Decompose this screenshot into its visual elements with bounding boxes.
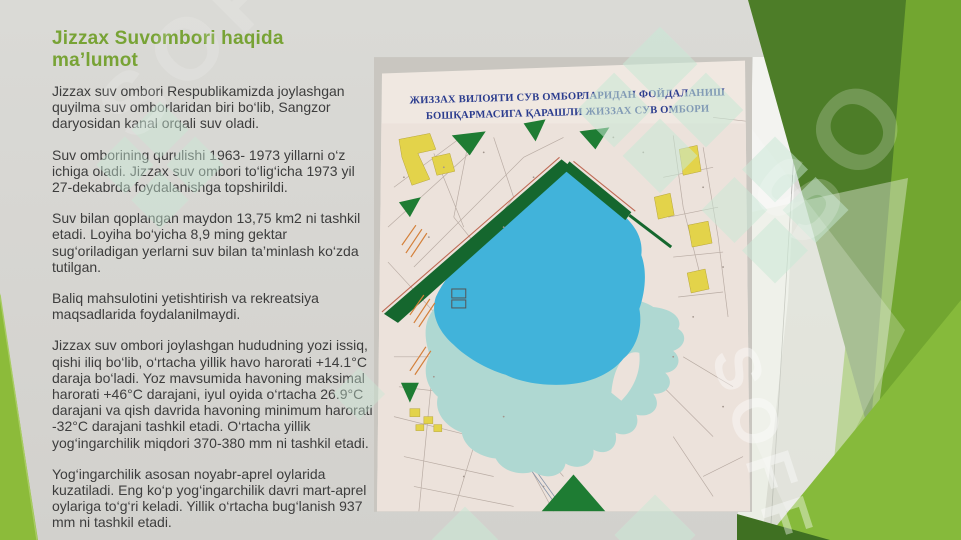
presentation-slide: Jizzax Suvombori haqida ma’lumot Jizzax … [0, 0, 961, 540]
reservoir-map-svg: ЖИЗЗАХ ВИЛОЯТИ СУВ ОМБОРЛАРИДАН ФОЙДАЛАН… [374, 57, 752, 512]
paragraph-6: Yog‘ingarchilik asosan noyabr-aprel oyla… [52, 466, 374, 531]
paragraph-3: Suv bilan qoplangan maydon 13,75 km2 ni … [52, 210, 374, 275]
paragraph-4: Baliq mahsulotini yetishtirish va rekrea… [52, 290, 374, 322]
text-column: Jizzax Suvombori haqida ma’lumot Jizzax … [52, 28, 374, 540]
reservoir-map-photo: ЖИЗЗАХ ВИЛОЯТИ СУВ ОМБОРЛАРИДАН ФОЙДАЛАН… [374, 57, 752, 512]
paragraph-1: Jizzax suv ombori Respublikamizda joylas… [52, 83, 374, 132]
paragraph-2: Suv omborining qurulishi 1963- 1973 yill… [52, 147, 374, 196]
slide-title: Jizzax Suvombori haqida ma’lumot [52, 28, 374, 72]
paragraph-5: Jizzax suv ombori joylashgan hududning y… [52, 337, 374, 450]
